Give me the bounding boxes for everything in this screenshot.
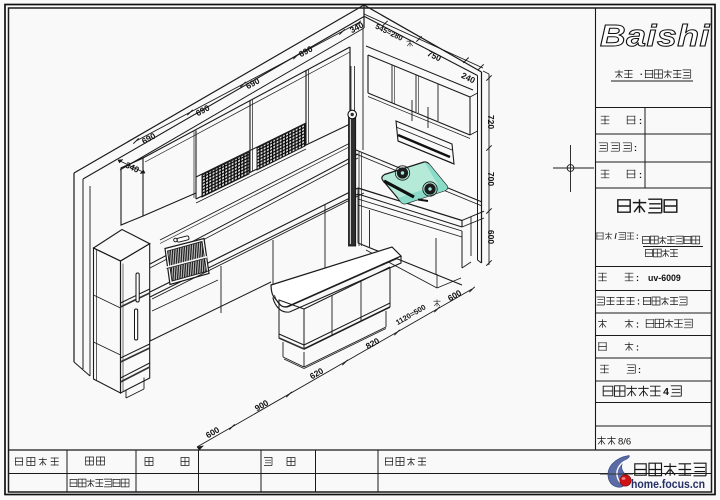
svg-text:·: · xyxy=(640,70,643,80)
svg-text:8/6: 8/6 xyxy=(618,437,631,448)
svg-text:Baishi: Baishi xyxy=(600,19,710,53)
svg-text:720: 720 xyxy=(486,115,496,129)
svg-text:home.focus.cn: home.focus.cn xyxy=(631,477,705,491)
svg-text:600: 600 xyxy=(486,230,496,244)
svg-text::: : xyxy=(636,320,639,330)
svg-text::: : xyxy=(638,365,641,375)
svg-text:uv-6009: uv-6009 xyxy=(648,273,681,283)
svg-text::: : xyxy=(639,116,642,126)
svg-text::: : xyxy=(636,232,639,241)
svg-text::: : xyxy=(634,143,637,153)
svg-text::: : xyxy=(637,297,640,307)
svg-text::: : xyxy=(636,273,639,283)
svg-text::: : xyxy=(636,343,639,353)
svg-text:4: 4 xyxy=(663,386,669,398)
svg-text:700: 700 xyxy=(486,172,496,186)
svg-text::: : xyxy=(639,170,642,180)
